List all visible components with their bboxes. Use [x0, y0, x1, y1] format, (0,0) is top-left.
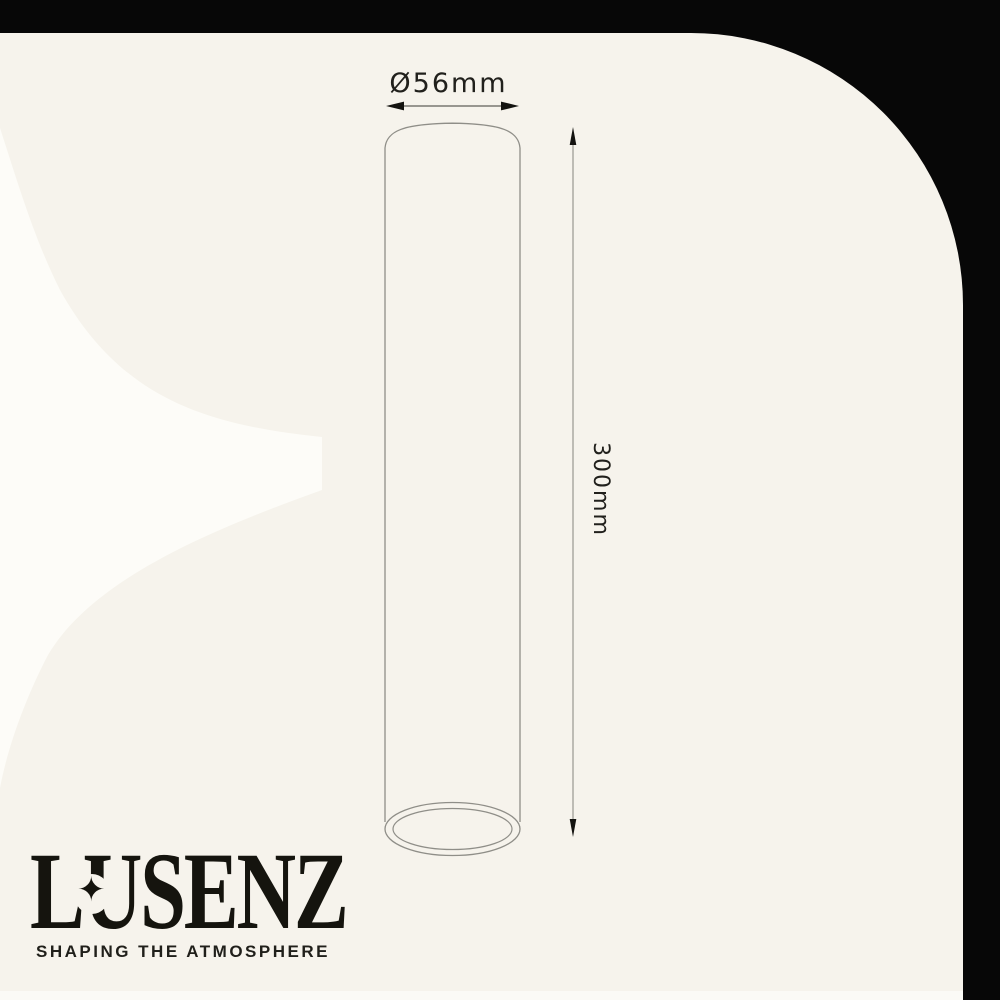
sparkle-star-icon: ✦ — [77, 870, 106, 910]
diameter-label: Ø56mm — [380, 68, 517, 99]
height-label: 300mm — [588, 442, 613, 537]
panel-bottom-strip — [0, 991, 963, 1000]
brand-tagline: SHAPING THE ATMOSPHERE — [36, 942, 330, 962]
brand-logo: LUSENZ ✦ SHAPING THE ATMOSPHERE — [30, 836, 450, 986]
product-dimension-image: { "brand": { "name": "LUSENZ", "tagline"… — [0, 0, 1000, 1000]
